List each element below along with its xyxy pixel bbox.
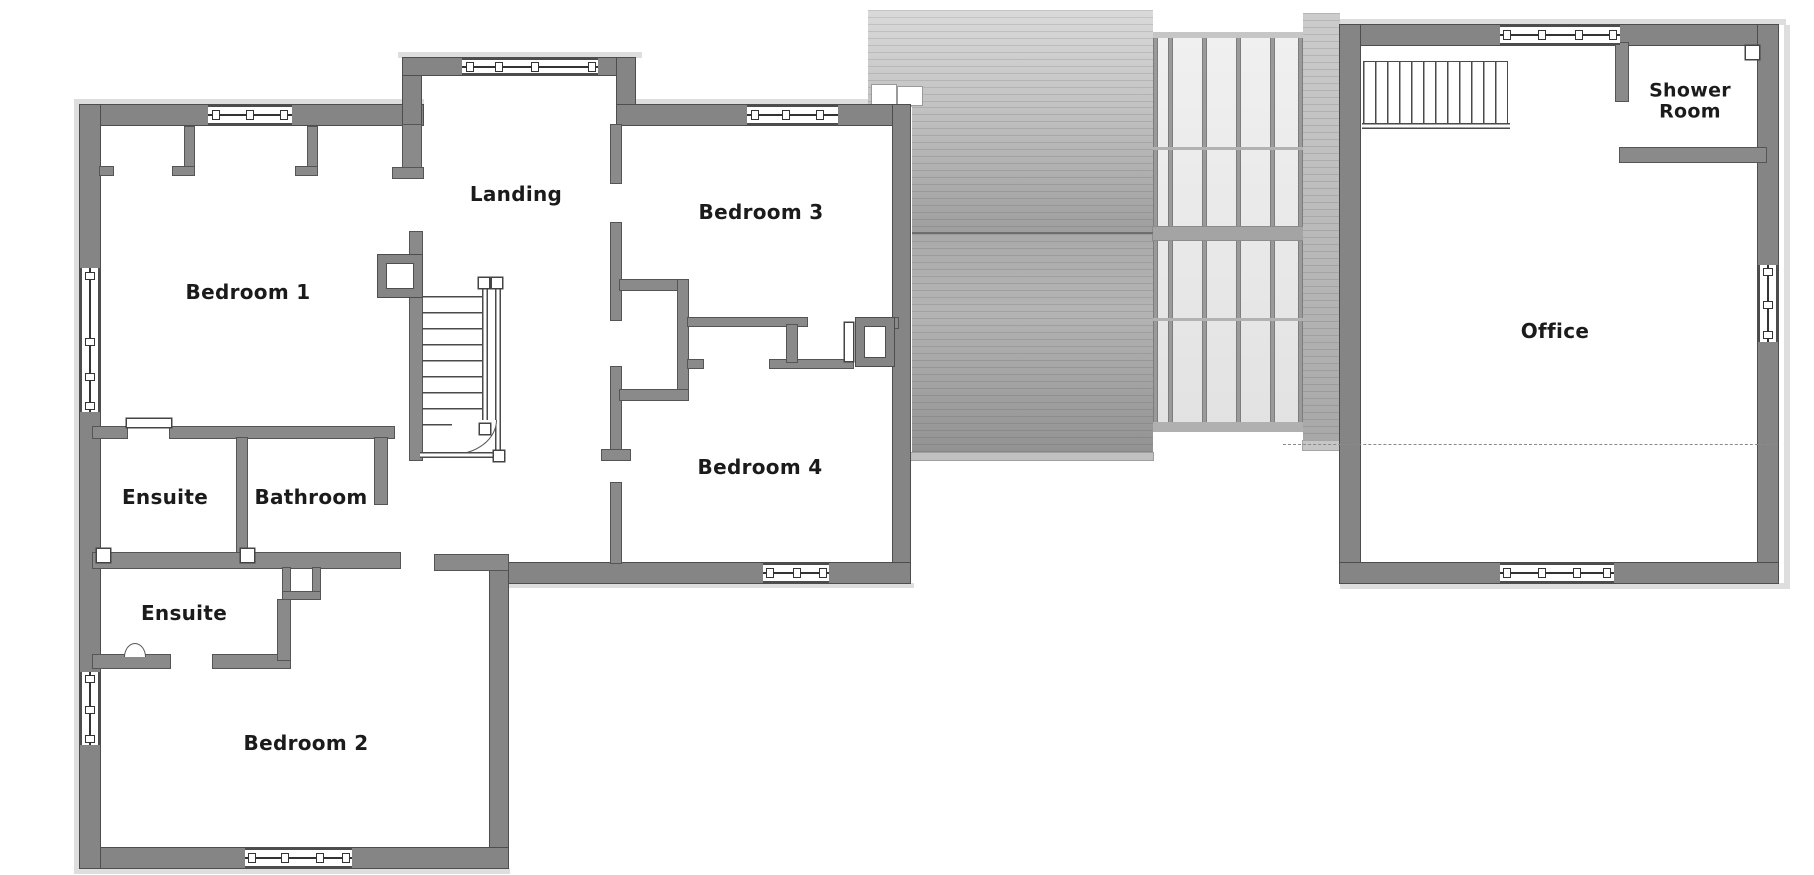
exterior-wall bbox=[1340, 25, 1360, 583]
interior-wall bbox=[787, 325, 797, 362]
interior-wall bbox=[611, 367, 621, 460]
office-staircase bbox=[1363, 61, 1508, 124]
stair-curve bbox=[452, 420, 497, 455]
interior-wall bbox=[393, 168, 423, 178]
glazing-transom bbox=[1153, 318, 1303, 321]
interior-wall bbox=[611, 223, 621, 320]
interior-wall bbox=[100, 167, 113, 175]
window bbox=[1500, 25, 1620, 45]
shadow-band bbox=[78, 868, 510, 874]
interior-wall bbox=[308, 127, 317, 169]
door-pivot bbox=[241, 549, 254, 562]
roof-strip-sill bbox=[1303, 441, 1340, 450]
door-leaf bbox=[845, 323, 853, 361]
glazing-transom bbox=[1153, 422, 1303, 432]
office-stair-rail bbox=[1362, 123, 1510, 129]
room-label-shower-room: Shower Room bbox=[1642, 80, 1738, 121]
interior-wall bbox=[185, 127, 194, 169]
stair-newel-post bbox=[492, 278, 502, 288]
exterior-wall bbox=[80, 105, 100, 868]
cupboard-wall bbox=[678, 280, 688, 400]
window bbox=[1758, 265, 1778, 342]
stair-handrail bbox=[495, 284, 501, 456]
interior-wall bbox=[173, 167, 194, 175]
room-label-ensuite-1: Ensuite bbox=[122, 485, 208, 509]
roof-eave-sill bbox=[908, 453, 1153, 460]
glazing-transom bbox=[1153, 147, 1303, 150]
roof-mid bbox=[912, 107, 1153, 234]
interior-wall bbox=[611, 483, 621, 563]
floor-plan: Bedroom 1 Landing Bedroom 3 Bedroom 4 En… bbox=[0, 0, 1814, 875]
stair-bottom-rail bbox=[420, 452, 502, 458]
window bbox=[763, 563, 829, 583]
room-label-bedroom-4: Bedroom 4 bbox=[698, 455, 823, 479]
roof-dormer-box bbox=[872, 85, 896, 105]
interior-wall bbox=[170, 427, 394, 438]
window bbox=[1500, 563, 1614, 583]
stair-newel-post bbox=[480, 424, 490, 434]
staircase bbox=[422, 296, 484, 432]
closet-wall bbox=[283, 592, 320, 599]
door-swing-arc bbox=[124, 643, 146, 657]
interior-wall bbox=[611, 125, 621, 183]
roof-lower bbox=[912, 234, 1153, 453]
extractor-symbol bbox=[1746, 46, 1759, 59]
interior-wall bbox=[237, 438, 247, 554]
shadow-band bbox=[1340, 583, 1784, 589]
interior-wall bbox=[296, 167, 317, 175]
interior-wall bbox=[435, 555, 508, 570]
window bbox=[80, 268, 100, 412]
window bbox=[80, 672, 100, 745]
room-label-bathroom: Bathroom bbox=[254, 485, 367, 509]
interior-wall bbox=[1616, 43, 1628, 101]
cupboard-wall bbox=[620, 390, 688, 400]
room-label-bedroom-3: Bedroom 3 bbox=[699, 200, 824, 224]
stair-handrail bbox=[482, 284, 488, 426]
stair-newel-post bbox=[494, 451, 504, 461]
room-label-bedroom-2: Bedroom 2 bbox=[244, 731, 369, 755]
glazing-transom bbox=[1153, 32, 1303, 38]
interior-wall bbox=[375, 438, 387, 504]
glazing-ridge-band bbox=[1153, 227, 1303, 240]
shadow-band bbox=[508, 583, 914, 588]
stair-newel-post bbox=[479, 278, 489, 288]
window-bay-landing bbox=[462, 58, 598, 75]
roof-dormer-box bbox=[898, 87, 922, 105]
window bbox=[208, 105, 292, 125]
room-label-ensuite-2: Ensuite bbox=[141, 601, 227, 625]
roof-ridge-line bbox=[912, 232, 1153, 234]
window bbox=[747, 105, 838, 125]
interior-wall bbox=[1620, 148, 1766, 162]
section-line bbox=[1283, 444, 1778, 445]
bedroom4-cupboard bbox=[856, 318, 894, 366]
room-label-landing: Landing bbox=[470, 182, 562, 206]
interior-wall bbox=[278, 600, 290, 660]
interior-wall bbox=[770, 360, 853, 368]
room-label-office: Office bbox=[1521, 319, 1589, 343]
door-leaf bbox=[127, 419, 171, 427]
interior-wall bbox=[688, 360, 703, 368]
interior-wall bbox=[93, 427, 127, 438]
exterior-wall bbox=[893, 105, 910, 583]
room-label-bedroom-1: Bedroom 1 bbox=[186, 280, 311, 304]
interior-wall bbox=[602, 450, 630, 460]
window bbox=[245, 848, 352, 868]
glazed-link-roof bbox=[1153, 32, 1303, 432]
roof-strip-right bbox=[1303, 13, 1340, 441]
exterior-wall bbox=[490, 563, 508, 868]
exterior-wall bbox=[508, 563, 910, 583]
stair-cupboard bbox=[378, 255, 422, 297]
shadow-band bbox=[1784, 25, 1790, 589]
door-pivot bbox=[97, 549, 110, 562]
